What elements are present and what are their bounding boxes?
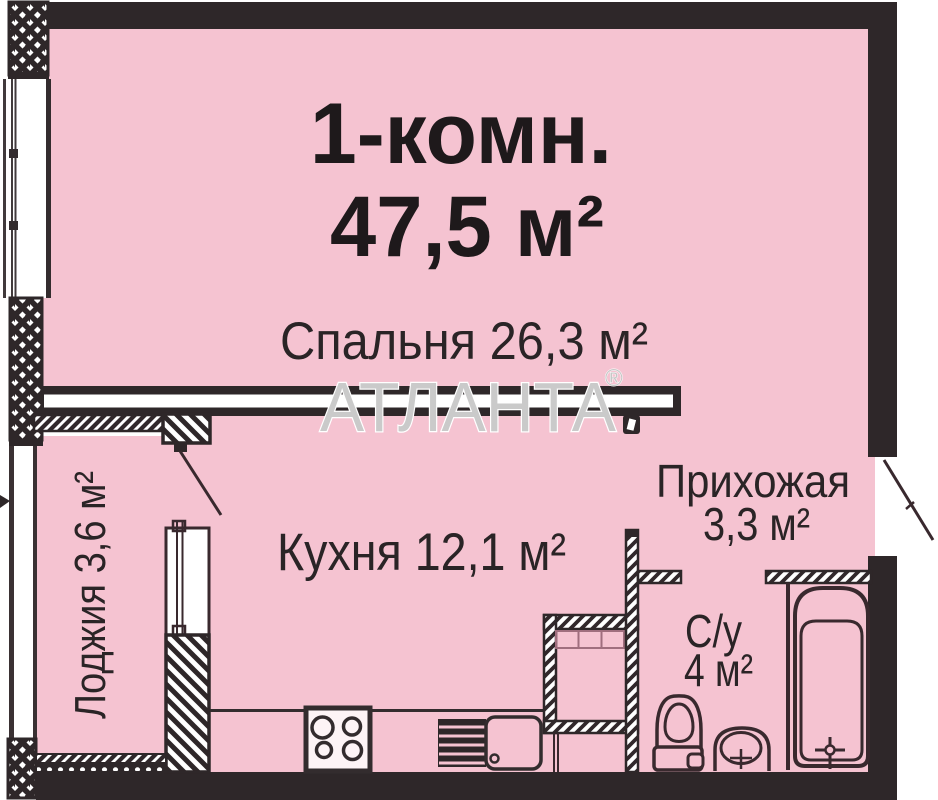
- svg-text:3,3 м²: 3,3 м²: [703, 498, 810, 550]
- svg-text:47,5 м²: 47,5 м²: [330, 179, 604, 275]
- svg-text:Кухня 12,1 м²: Кухня 12,1 м²: [277, 523, 566, 582]
- svg-text:АТЛАНТА: АТЛАНТА: [320, 368, 616, 446]
- svg-text:Лоджия 3,6 м²: Лоджия 3,6 м²: [66, 471, 115, 719]
- svg-text:4 м²: 4 м²: [684, 644, 753, 696]
- svg-text:1-комн.: 1-комн.: [310, 86, 612, 182]
- svg-text:Спальня 26,3 м²: Спальня 26,3 м²: [280, 312, 648, 371]
